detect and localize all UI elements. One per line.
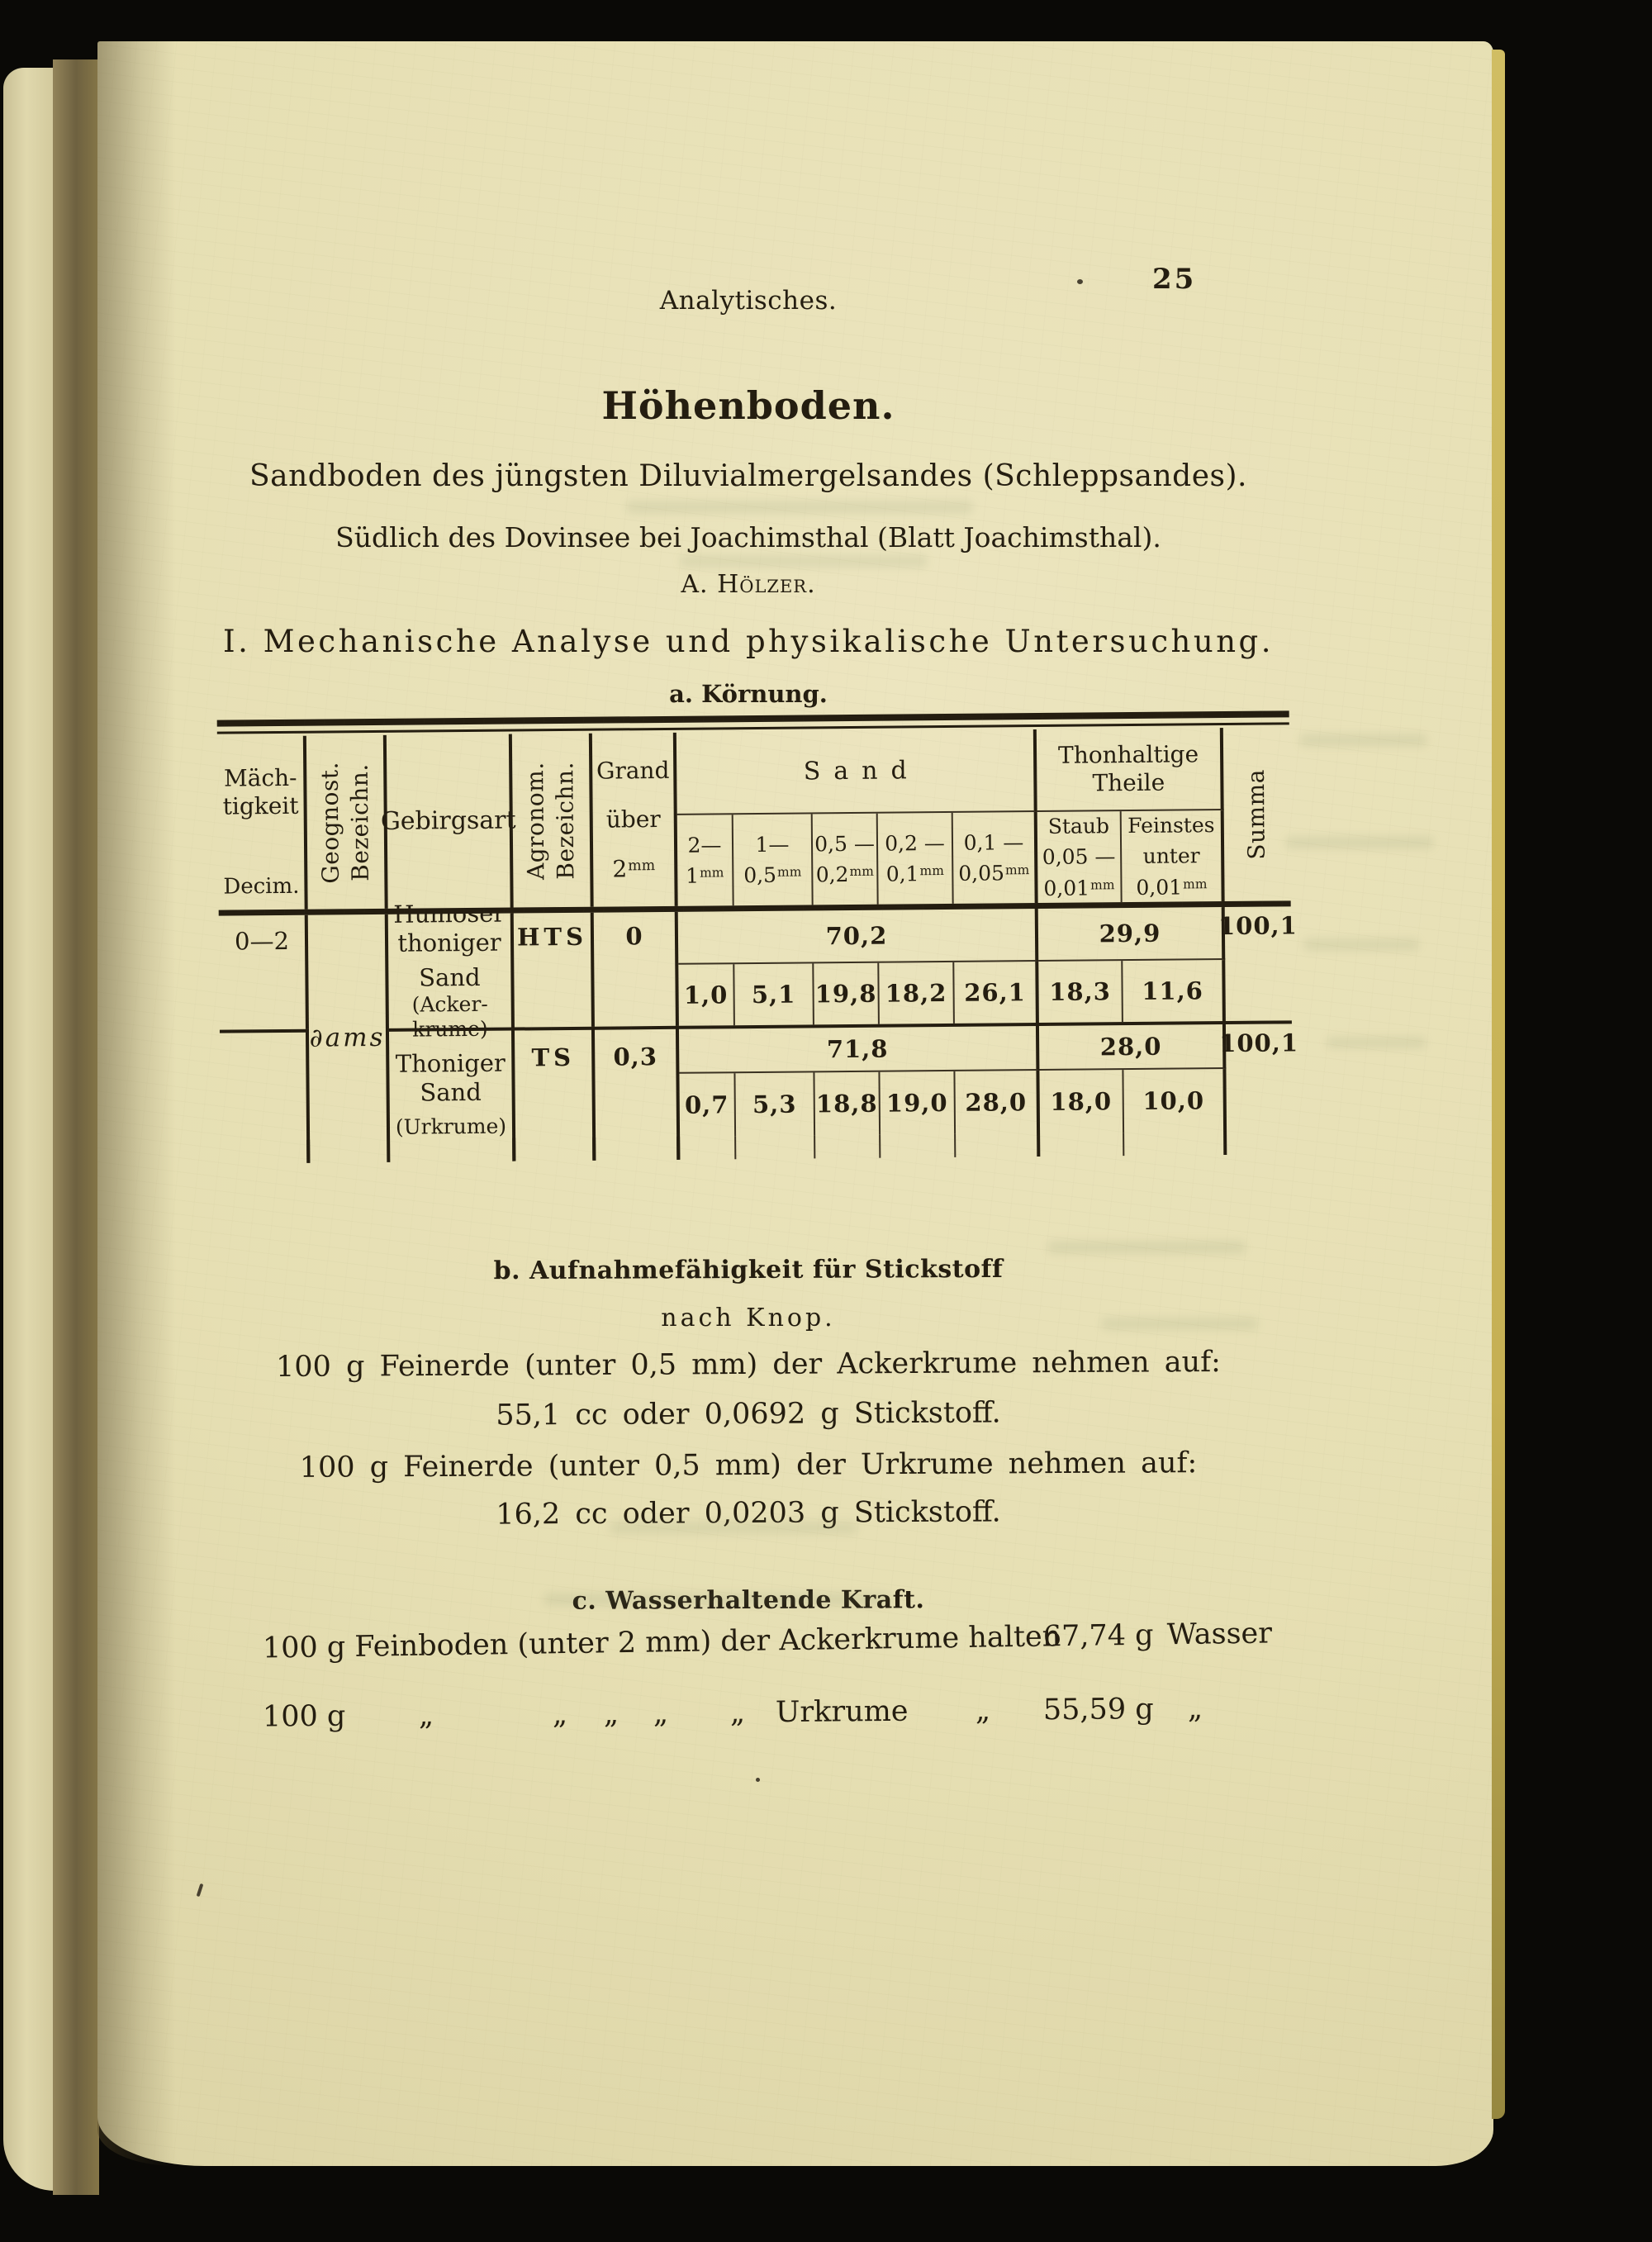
header-feinstes-unit: mm bbox=[1183, 876, 1208, 891]
header-grand-unit: mm bbox=[628, 857, 655, 874]
ditto-mark: „ bbox=[553, 1698, 567, 1731]
thon-value: 18,0 bbox=[1039, 1070, 1124, 1133]
cell-thon-total-r2: 28,0 bbox=[1039, 1021, 1226, 1071]
header-geognost-l1: Geognost. bbox=[315, 762, 346, 884]
thon-value: 18,3 bbox=[1038, 961, 1123, 1023]
header-feinstes-num: 0,01 bbox=[1136, 875, 1182, 899]
c1-value: 67,74 g bbox=[1043, 1619, 1154, 1654]
c2-lead: 100 g bbox=[263, 1700, 346, 1734]
sand-value: 5,3 bbox=[735, 1072, 815, 1136]
rule-tail bbox=[1040, 1133, 1124, 1157]
section-b-line-2: 55,1 cc oder 0,0692 g Stickstoff. bbox=[125, 1394, 1372, 1434]
ditto-mark: „ bbox=[653, 1697, 668, 1730]
sand-value: 1,0 bbox=[678, 964, 735, 1026]
sand-col-num: 0,2 bbox=[816, 862, 849, 886]
header-grand-num: 2 bbox=[612, 855, 627, 882]
header-sand-group: Sand bbox=[676, 729, 1037, 815]
sand-value: 19,8 bbox=[814, 963, 880, 1025]
sand-col-unit: mm bbox=[919, 863, 944, 878]
section-b-line-3: 100 g Feinerde (unter 0,5 mm) der Urkrum… bbox=[125, 1446, 1372, 1485]
sand-col-unit: mm bbox=[700, 865, 724, 880]
rule-tail bbox=[1124, 1132, 1227, 1156]
rule-tail bbox=[956, 1133, 1040, 1157]
page-title: Höhenboden. bbox=[125, 383, 1372, 428]
header-maechtigkeit-unit: Decim. bbox=[223, 874, 299, 900]
section-b-heading: b. Aufnahmefähigkeit für Stickstoff bbox=[125, 1253, 1372, 1286]
header-agronom: Agronom. Bezeichn. bbox=[512, 734, 594, 908]
header-staub-l1: Staub bbox=[1048, 810, 1110, 842]
section-heading: I. Mechanische Analyse und physikalische… bbox=[125, 624, 1372, 659]
geognost-symbol: ∂ams bbox=[309, 1023, 385, 1054]
cell-gebirgsart-r1: Humoser thoniger Sand (Acker- krume) bbox=[388, 914, 515, 1028]
c1-lead: 100 g Feinboden (unter 2 mm) der Ackerkr… bbox=[263, 1620, 1061, 1665]
table-grid: Mäch- tigkeit Decim. Geognost. Bezeichn.… bbox=[217, 727, 1293, 1163]
gebirgsart-line: Sand bbox=[420, 1078, 482, 1108]
cell-summa-r2: 100,1 bbox=[1226, 1020, 1293, 1132]
rule-tail bbox=[596, 1137, 680, 1161]
scan-background: 25 Analytisches. Höhenboden. Sandboden d… bbox=[0, 0, 1652, 2242]
sand-col-num: 0,05 bbox=[958, 861, 1004, 885]
sand-col-top: 2— bbox=[687, 829, 721, 861]
header-geognost: Geognost. Bezeichn. bbox=[306, 735, 388, 910]
header-sand-col-3: 0,5 — 0,2mm bbox=[813, 814, 879, 905]
thon-value: 10,0 bbox=[1123, 1069, 1227, 1133]
cell-summa-r1: 100,1 bbox=[1225, 906, 1292, 1021]
koernung-table: Mäch- tigkeit Decim. Geognost. Bezeichn.… bbox=[217, 710, 1294, 1163]
sand-col-top: 1— bbox=[755, 829, 789, 860]
header-summa: Summa bbox=[1223, 727, 1291, 901]
header-staub-l2: 0,05 — bbox=[1042, 841, 1116, 872]
header-summa-label: Summa bbox=[1241, 769, 1272, 860]
header-agronom-l1: Agronom. bbox=[520, 762, 552, 880]
subsection-a-heading: a. Körnung. bbox=[125, 680, 1372, 708]
rule-tail bbox=[515, 1138, 596, 1161]
sand-value: 19,0 bbox=[880, 1071, 956, 1135]
header-thon-l1: Thonhaltige bbox=[1058, 741, 1199, 770]
header-staub: Staub 0,05 — 0,01mm bbox=[1037, 811, 1123, 903]
sand-col-unit: mm bbox=[849, 864, 874, 879]
ink-speck bbox=[197, 1883, 204, 1897]
bleedthrough bbox=[1101, 1318, 1258, 1330]
rule-tail bbox=[221, 1140, 310, 1164]
bleedthrough bbox=[680, 555, 928, 568]
cell-geognost-span: ∂ams bbox=[308, 914, 391, 1163]
c1-tail: Wasser bbox=[1167, 1617, 1273, 1651]
header-maechtigkeit: Mäch- tigkeit Decim. bbox=[217, 736, 308, 910]
gebirgsart-note: (Acker- bbox=[411, 992, 487, 1018]
cell-sand-total-r2: 71,8 bbox=[679, 1023, 1039, 1074]
header-thon-l2: Theile bbox=[1092, 769, 1165, 797]
sand-value: 26,1 bbox=[954, 962, 1039, 1024]
bleedthrough bbox=[1303, 938, 1419, 951]
sand-col-unit: mm bbox=[1005, 862, 1030, 877]
sand-col-top: 0,5 — bbox=[814, 828, 875, 859]
header-feinstes-l2: unter bbox=[1143, 841, 1200, 872]
cell-thon-total-r1: 29,9 bbox=[1038, 907, 1226, 962]
section-c-line-2: 100 g „ „ „ „ „ Urkrume „ 55,59 g „ bbox=[125, 1691, 1372, 1741]
sand-col-num: 0,1 bbox=[886, 862, 919, 886]
header-thon-group: Thonhaltige Theile bbox=[1037, 728, 1224, 812]
sand-col-top: 0,2 — bbox=[885, 827, 945, 858]
header-sand-col-5: 0,1 — 0,05mm bbox=[953, 812, 1038, 904]
sand-col-num: 1 bbox=[686, 864, 699, 888]
rule-tail bbox=[815, 1135, 881, 1159]
header-grand-l1: Grand bbox=[596, 757, 670, 785]
header-maechtigkeit-l1: Mäch- bbox=[224, 764, 297, 792]
sand-col-top: 0,1 — bbox=[963, 827, 1023, 858]
sand-col-unit: mm bbox=[777, 865, 802, 880]
sand-col-num: 0,5 bbox=[743, 863, 776, 887]
gebirgsart-note: (Urkrume) bbox=[396, 1114, 506, 1139]
gebirgsart-line: Humoser bbox=[393, 900, 505, 930]
header-sand-col-4: 0,2 — 0,1mm bbox=[878, 813, 954, 905]
header-maechtigkeit-l2: tigkeit bbox=[223, 791, 299, 819]
previous-page-edge bbox=[3, 68, 55, 2191]
thon-value: 11,6 bbox=[1123, 960, 1226, 1022]
cell-maechtigkeit-r1: 0—2 bbox=[219, 915, 309, 1030]
bleedthrough bbox=[626, 501, 973, 514]
ink-speck bbox=[1077, 279, 1083, 284]
book-page: 25 Analytisches. Höhenboden. Sandboden d… bbox=[97, 41, 1493, 2166]
bleedthrough bbox=[1327, 1037, 1426, 1048]
bleedthrough bbox=[1299, 734, 1427, 747]
ditto-mark: „ bbox=[730, 1696, 745, 1729]
header-sand-col-1: 2— 1mm bbox=[677, 815, 734, 906]
subtitle: Sandboden des jüngsten Diluvialmergelsan… bbox=[125, 459, 1372, 493]
book-gutter-shadow bbox=[53, 59, 99, 2195]
sand-value: 28,0 bbox=[955, 1071, 1040, 1134]
header-geognost-l2: Bezeichn. bbox=[345, 761, 377, 883]
c2-value: 55,59 g bbox=[1043, 1693, 1154, 1727]
page-edge-strip bbox=[1492, 50, 1505, 2119]
gebirgsart-line: Thoniger bbox=[396, 1049, 506, 1080]
c2-name: Urkrume bbox=[776, 1695, 909, 1729]
sand-value: 5,1 bbox=[734, 963, 814, 1025]
bleedthrough bbox=[1047, 1241, 1246, 1254]
header-gebirgsart: Gebirgsart bbox=[387, 734, 514, 909]
section-b-line-1: 100 g Feinerde (unter 0,5 mm) der Ackerk… bbox=[125, 1345, 1372, 1385]
header-staub-unit: mm bbox=[1090, 877, 1115, 892]
header-grand-l2: über bbox=[606, 805, 661, 834]
header-feinstes: Feinstes unter 0,01mm bbox=[1122, 810, 1225, 902]
cell-sand-total-r1: 70,2 bbox=[678, 909, 1039, 965]
header-staub-num: 0,01 bbox=[1043, 876, 1089, 900]
section-c-line-1: 100 g Feinboden (unter 2 mm) der Ackerkr… bbox=[125, 1616, 1373, 1674]
gebirgsart-line: Sand bbox=[419, 963, 481, 993]
bleedthrough bbox=[544, 1593, 890, 1606]
header-sand-col-2: 1— 0,5mm bbox=[733, 814, 814, 905]
running-header-title: Analytisches. bbox=[125, 286, 1372, 316]
header-grand: Grand über 2mm bbox=[592, 733, 678, 907]
location-line: Südlich des Dovinsee bei Joachimsthal (B… bbox=[125, 521, 1372, 553]
sand-value: 18,8 bbox=[814, 1072, 881, 1136]
rule-tail bbox=[736, 1135, 815, 1159]
author-line: A. Hölzer. bbox=[125, 570, 1372, 599]
header-feinstes-l1: Feinstes bbox=[1127, 810, 1215, 841]
rule-tail bbox=[680, 1136, 736, 1160]
ink-speck bbox=[756, 1778, 760, 1782]
gebirgsart-line: thoniger bbox=[397, 929, 501, 958]
ditto-mark: „ bbox=[419, 1699, 434, 1732]
sand-value: 0,7 bbox=[679, 1073, 736, 1137]
ditto-mark: „ bbox=[604, 1698, 619, 1731]
bleedthrough bbox=[1285, 836, 1434, 849]
rule-tail bbox=[881, 1134, 956, 1158]
cell-agronom-r1: HTS bbox=[514, 913, 595, 1028]
ditto-mark: „ bbox=[1188, 1693, 1203, 1726]
ditto-mark: „ bbox=[976, 1694, 990, 1727]
cell-grand-r1: 0 bbox=[594, 912, 679, 1027]
header-agronom-l2: Bezeichn. bbox=[551, 761, 582, 879]
sand-value: 18,2 bbox=[879, 962, 955, 1024]
rule-tail bbox=[390, 1138, 515, 1162]
bleedthrough bbox=[610, 1522, 857, 1534]
